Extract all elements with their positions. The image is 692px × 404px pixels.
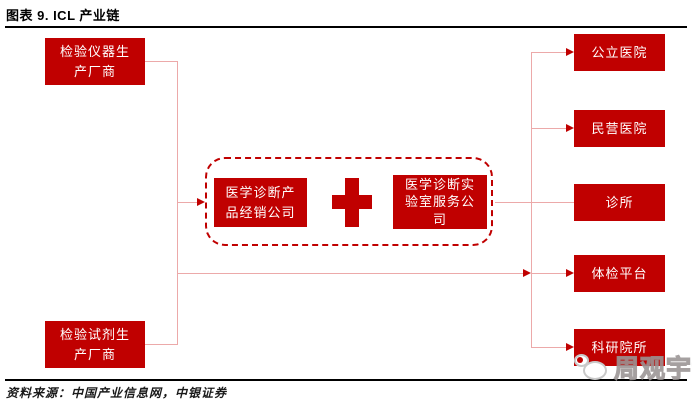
watermark: 周观宇论 [572,350,692,384]
plus-icon [332,178,372,227]
node-lab-service-company: 医学诊断实 验室服务公 司 [393,175,487,229]
title-rule [5,26,687,28]
connector-instrument-to-trunk [145,61,177,62]
figure-icl-industry-chain: 图表 9. ICL 产业链 检验仪器生 产厂商 检验试剂生 产厂商 医学诊断产 … [0,0,692,404]
node-reagent-manufacturer: 检验试剂生 产厂商 [45,321,145,368]
chat-bubble-large [583,361,607,380]
connector-to-research [531,347,566,348]
node-clinic: 诊所 [574,184,665,221]
connector-to-checkup [531,273,566,274]
watermark-text: 周观宇论 [614,349,692,385]
connector-trunk-to-core [177,202,197,203]
source-note: 资料来源：中国产业信息网，中银证券 [6,384,227,401]
node-instrument-manufacturer: 检验仪器生 产厂商 [45,38,145,85]
arrowhead-private-hospital-icon [566,124,574,132]
connector-core-to-clinic [495,202,574,203]
arrowhead-into-core-icon [197,198,205,206]
connector-left-trunk [177,61,178,345]
arrowhead-public-hospital-icon [566,48,574,56]
node-private-hospital: 民营医院 [574,110,665,147]
node-distribution-company: 医学诊断产 品经销公司 [214,178,307,227]
arrowhead-checkup-icon [566,269,574,277]
figure-title: 图表 9. ICL 产业链 [6,5,120,24]
connector-reagent-to-trunk [144,344,177,345]
connector-to-public-hospital [531,52,566,53]
connector-to-private-hospital [531,128,566,129]
arrowhead-bypass-icon [523,269,531,277]
connector-right-trunk [531,52,532,347]
connector-bypass-long [177,273,523,274]
red-dot [577,357,583,363]
node-public-hospital: 公立医院 [574,34,665,71]
node-checkup-platform: 体检平台 [574,255,665,292]
chat-bubbles-icon [572,351,614,383]
plus-horizontal-bar [332,195,372,209]
